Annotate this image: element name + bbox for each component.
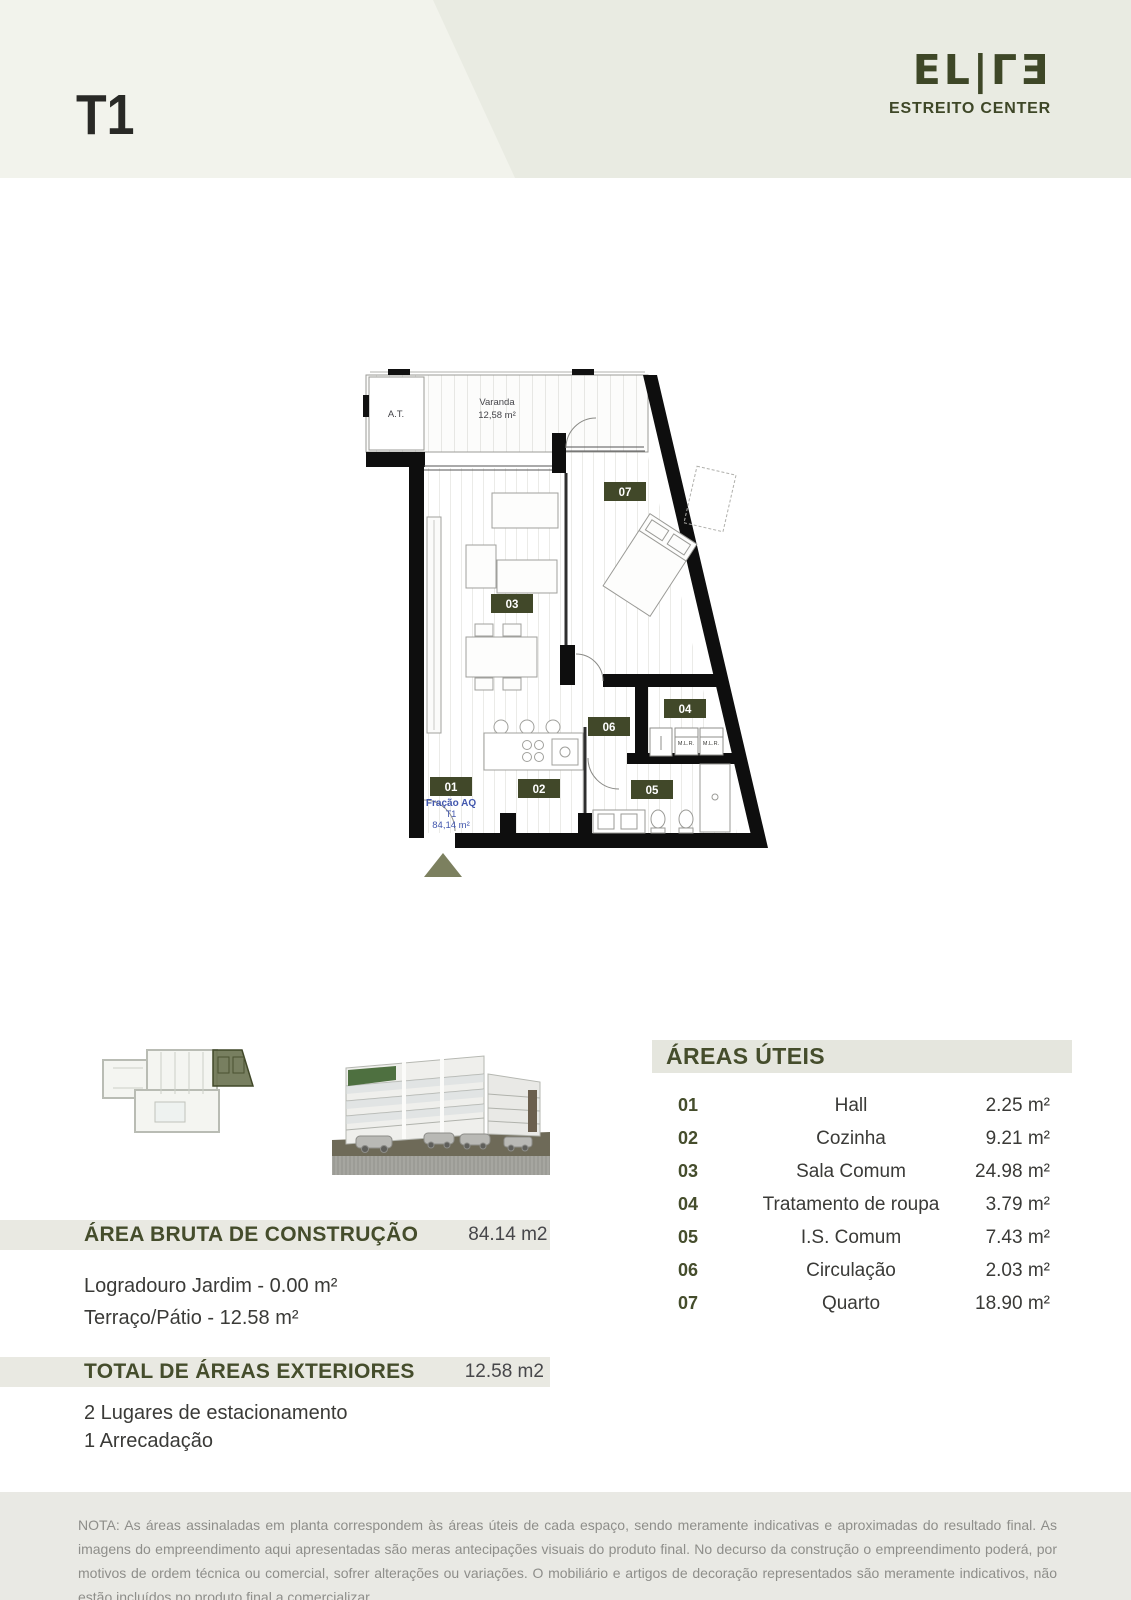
row-name: I.S. Comum: [750, 1227, 952, 1249]
note-band: NOTA: As áreas assinaladas em planta cor…: [0, 1492, 1131, 1600]
row-area: 2.03 m²: [952, 1260, 1072, 1282]
row-name: Sala Comum: [750, 1161, 952, 1183]
table-row: 01 Hall 2.25 m²: [652, 1089, 1072, 1122]
construction-title: ÁREA BRUTA DE CONSTRUÇÃO: [0, 1223, 418, 1247]
logradouro-line: Logradouro Jardim - 0.00 m²: [84, 1275, 337, 1298]
row-code: 03: [652, 1161, 750, 1182]
badge-06-label: 06: [603, 722, 616, 734]
row-area: 24.98 m²: [952, 1161, 1072, 1183]
row-code: 05: [652, 1227, 750, 1248]
note-text: NOTA: As áreas assinaladas em planta cor…: [78, 1513, 1057, 1600]
brand-logo: EL|ΓƎ ESTREITO CENTER: [889, 48, 1051, 118]
table-row: 03 Sala Comum 24.98 m²: [652, 1155, 1072, 1188]
badge-03-label: 03: [506, 599, 519, 611]
unit-type-title: T1: [76, 82, 135, 148]
brand-logo-text: EL|ΓƎ: [889, 48, 1051, 93]
areas-table: 01 Hall 2.25 m² 02 Cozinha 9.21 m² 03 Sa…: [652, 1089, 1072, 1320]
storage-line: 1 Arrecadação: [84, 1430, 213, 1453]
areas-uteis-section: ÁREAS ÚTEIS 01 Hall 2.25 m² 02 Cozinha 9…: [652, 1040, 1072, 1320]
exteriors-title: TOTAL DE ÁREAS EXTERIORES: [0, 1360, 415, 1384]
table-row: 02 Cozinha 9.21 m²: [652, 1122, 1072, 1155]
building-plan-thumbnail: [95, 1040, 260, 1135]
at-room-label: A.T.: [388, 409, 404, 420]
construction-value: 84.14 m2: [468, 1224, 547, 1246]
exteriors-value: 12.58 m2: [465, 1361, 544, 1383]
row-code: 01: [652, 1095, 750, 1116]
entrance-triangle: [424, 853, 462, 877]
row-name: Tratamento de roupa: [750, 1194, 952, 1216]
row-code: 06: [652, 1260, 750, 1281]
row-name: Circulação: [750, 1260, 952, 1282]
row-area: 18.90 m²: [952, 1293, 1072, 1315]
badge-01-label: 01: [445, 782, 458, 794]
fraction-label: Fração AQ: [426, 798, 476, 809]
areas-uteis-band: ÁREAS ÚTEIS: [652, 1040, 1072, 1073]
mlr-label-2: M.L.R.: [703, 741, 720, 747]
row-code: 07: [652, 1293, 750, 1314]
row-name: Hall: [750, 1095, 952, 1117]
brand-logo-subtitle: ESTREITO CENTER: [889, 100, 1051, 118]
fraction-area: 84,14 m²: [432, 820, 470, 831]
row-area: 2.25 m²: [952, 1095, 1072, 1117]
table-row: 06 Circulação 2.03 m²: [652, 1254, 1072, 1287]
header-band: T1 EL|ΓƎ ESTREITO CENTER: [0, 0, 1131, 178]
badge-05-label: 05: [646, 785, 659, 797]
row-area: 7.43 m²: [952, 1227, 1072, 1249]
construction-band: ÁREA BRUTA DE CONSTRUÇÃO 84.14 m2: [0, 1220, 550, 1250]
varanda-area-label: 12,58 m²: [478, 410, 516, 421]
badge-07-label: 07: [619, 487, 632, 499]
badge-04-label: 04: [679, 704, 692, 716]
row-name: Quarto: [750, 1293, 952, 1315]
badge-02-label: 02: [533, 784, 546, 796]
fraction-unit: T1: [446, 809, 457, 819]
varanda-label: Varanda: [479, 397, 515, 408]
brochure-page: T1 EL|ΓƎ ESTREITO CENTER: [0, 0, 1131, 1600]
exteriors-band: TOTAL DE ÁREAS EXTERIORES 12.58 m2: [0, 1357, 550, 1387]
floor-plan: A.T. Varanda 12,58 m²: [350, 355, 780, 880]
table-row: 05 I.S. Comum 7.43 m²: [652, 1221, 1072, 1254]
row-name: Cozinha: [750, 1128, 952, 1150]
terraco-line: Terraço/Pátio - 12.58 m²: [84, 1307, 299, 1330]
row-code: 02: [652, 1128, 750, 1149]
parking-line: 2 Lugares de estacionamento: [84, 1402, 348, 1425]
areas-uteis-title: ÁREAS ÚTEIS: [652, 1043, 825, 1070]
table-row: 04 Tratamento de roupa 3.79 m²: [652, 1188, 1072, 1221]
table-row: 07 Quarto 18.90 m²: [652, 1287, 1072, 1320]
row-area: 9.21 m²: [952, 1128, 1072, 1150]
row-code: 04: [652, 1194, 750, 1215]
building-render-thumbnail: [332, 1040, 550, 1175]
mlr-label-1: M.L.R.: [678, 741, 695, 747]
row-area: 3.79 m²: [952, 1194, 1072, 1216]
